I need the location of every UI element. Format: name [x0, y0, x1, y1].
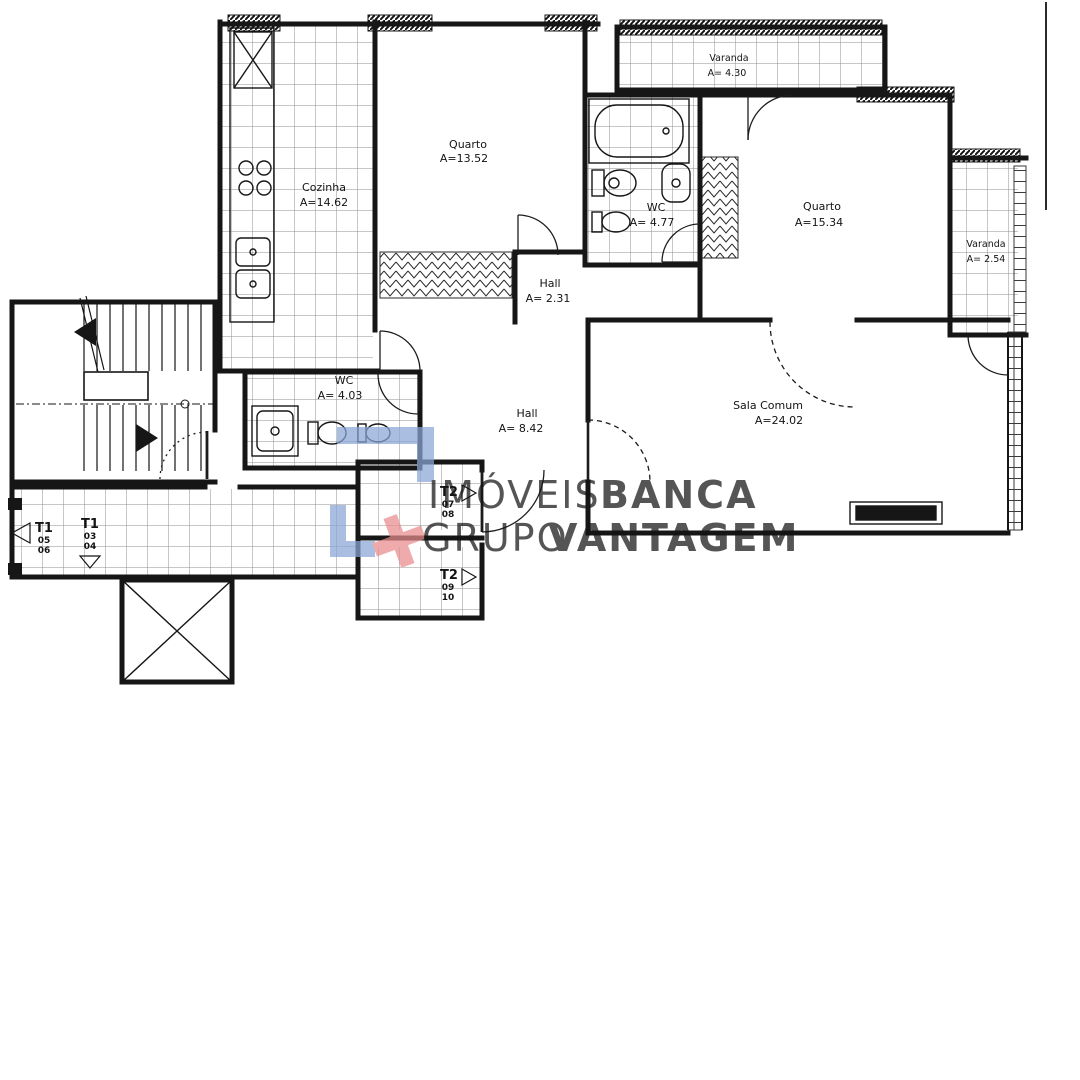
- stairs: [16, 296, 213, 471]
- room-label-cozinha: Cozinha: [302, 181, 346, 194]
- room-label-quarto1: Quarto: [449, 138, 487, 151]
- area-label-quarto2: A=15.34: [795, 216, 843, 229]
- door-varanda2: [968, 335, 1008, 375]
- svg-text:06: 06: [38, 546, 51, 556]
- svg-text:T2: T2: [440, 568, 458, 583]
- svg-text:03: 03: [84, 532, 97, 542]
- svg-text:T1: T1: [35, 521, 53, 536]
- area-label-varanda2: A= 2.54: [967, 254, 1006, 265]
- area-label-cozinha: A=14.62: [300, 196, 348, 209]
- sliding-door: [850, 502, 942, 524]
- area-label-varanda1: A= 4.30: [708, 68, 747, 79]
- watermark-word-vantagem: VANTAGEM: [548, 516, 799, 560]
- bathroom-small-tiles: [247, 374, 418, 466]
- floor-plan-drawing: Quarto A=13.52 Cozinha A=14.62 WC A= 4.7…: [0, 0, 1080, 1080]
- room-label-sala: Sala Comum: [733, 399, 803, 412]
- balcony-top-tiles: [619, 29, 883, 88]
- kitchen-floor-tiles: [222, 24, 373, 370]
- varanda-window-band: [1014, 166, 1026, 332]
- room-label-varanda2: Varanda: [966, 239, 1005, 250]
- watermark-word-grupo: GRUPO: [422, 516, 569, 560]
- void-cross: [122, 580, 232, 682]
- svg-text:05: 05: [38, 536, 51, 546]
- walls: [12, 22, 1026, 682]
- room-label-wc2: WC: [335, 374, 354, 387]
- watermark-word-banca: BANCA: [600, 473, 757, 517]
- room-label-hall2: Hall: [516, 407, 537, 420]
- svg-text:10: 10: [442, 593, 455, 603]
- wardrobe-quarto1: [380, 252, 512, 298]
- room-label-hall1: Hall: [539, 277, 560, 290]
- stair-direction-arrow: [74, 318, 96, 346]
- door-stairwell: [160, 431, 207, 479]
- room-label-wc1: WC: [647, 201, 666, 214]
- door-quarto2: [770, 322, 855, 407]
- area-label-wc1: A= 4.77: [630, 216, 675, 229]
- svg-text:09: 09: [442, 583, 455, 593]
- watermark-word-imoveis: IMÓVEIS: [428, 473, 601, 517]
- area-label-hall2: A= 8.42: [499, 422, 544, 435]
- door-varanda1: [748, 95, 793, 140]
- floor-plan-page: Quarto A=13.52 Cozinha A=14.62 WC A= 4.7…: [0, 0, 1080, 1080]
- area-label-quarto1: A=13.52: [440, 152, 488, 165]
- door-cozinha: [380, 331, 420, 371]
- wardrobe-quarto2: [698, 157, 738, 258]
- room-label-varanda1: Varanda: [709, 53, 748, 64]
- access-gallery-tiles: [14, 489, 356, 575]
- svg-text:T1: T1: [81, 517, 99, 532]
- sala-window-band: [1008, 332, 1022, 530]
- svg-text:04: 04: [84, 542, 97, 552]
- area-label-sala: A=24.02: [755, 414, 803, 427]
- stair-direction-arrow: [136, 424, 158, 452]
- area-label-hall1: A= 2.31: [526, 292, 571, 305]
- logo-bar-bottom: [330, 541, 375, 557]
- area-label-wc2: A= 4.03: [318, 389, 363, 402]
- room-label-quarto2: Quarto: [803, 200, 841, 213]
- door-quarto1: [518, 215, 558, 255]
